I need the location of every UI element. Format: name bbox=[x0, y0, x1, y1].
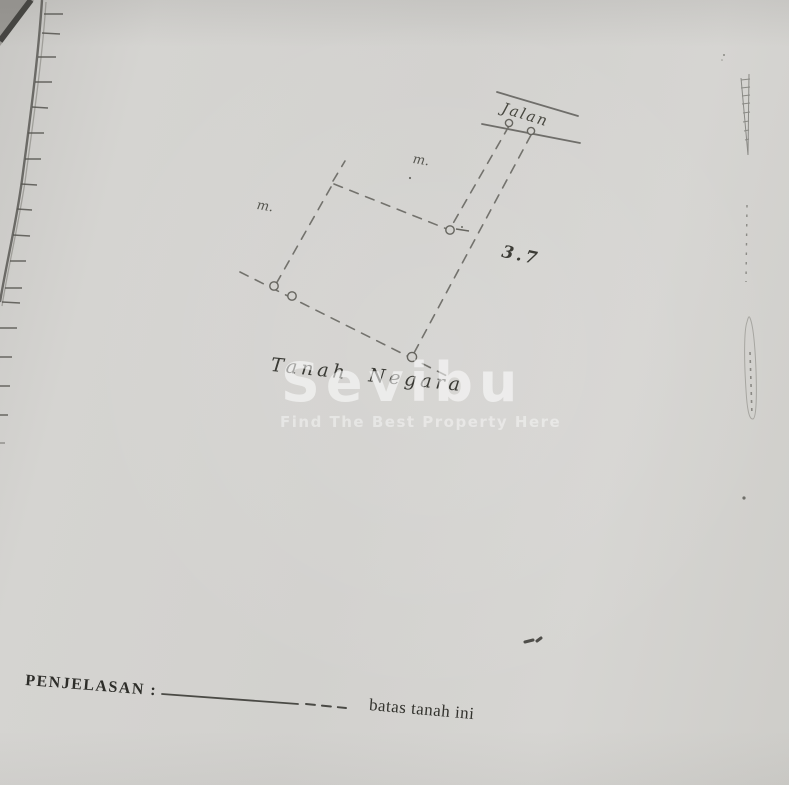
marker-road-right bbox=[527, 127, 534, 134]
boundary-stub-extension bbox=[333, 161, 345, 181]
tiny-mark-top bbox=[723, 54, 725, 56]
scanned-land-sketch-page: Jalan m. m. 3.7 Tanah Negara Sevibu Find… bbox=[0, 0, 789, 785]
marker-boundary-point bbox=[288, 292, 296, 300]
land-boundary-dashed bbox=[240, 126, 531, 377]
boundary-left-edge bbox=[276, 187, 331, 284]
ink-dot bbox=[742, 496, 745, 499]
pencil-loop-shading bbox=[750, 352, 752, 416]
legend-dashed-line bbox=[306, 704, 346, 708]
boundary-top-edge bbox=[334, 184, 447, 229]
marker-corner-d bbox=[270, 282, 278, 290]
meter-label-top: m. bbox=[412, 152, 431, 169]
boundary-road-to-corner-left bbox=[451, 126, 509, 227]
survey-marker-circles bbox=[270, 119, 535, 361]
legend-line-samples bbox=[162, 694, 346, 708]
ink-smudge bbox=[525, 638, 541, 642]
corner-b-tick bbox=[456, 229, 469, 231]
watermark-tagline: Find The Best Property Here bbox=[280, 413, 561, 431]
right-margin-artifacts bbox=[721, 54, 756, 500]
pencil-sliver bbox=[741, 74, 750, 155]
page-binding-edge bbox=[0, 0, 63, 443]
stray-dot-1 bbox=[409, 177, 411, 179]
legend-solid-line bbox=[162, 694, 298, 704]
marker-road-left bbox=[505, 119, 512, 126]
pencil-loop-mark bbox=[745, 317, 757, 419]
page-edge-curve bbox=[0, 0, 42, 302]
meter-label-left: m. bbox=[256, 198, 275, 215]
watermark-brand: Sevibu bbox=[281, 351, 523, 414]
tiny-mark-top-2 bbox=[721, 59, 723, 61]
marker-corner-b bbox=[446, 226, 454, 234]
binding-tick-marks bbox=[0, 14, 63, 443]
stray-dot-2 bbox=[461, 226, 463, 228]
dotted-vertical-mark bbox=[746, 205, 747, 282]
